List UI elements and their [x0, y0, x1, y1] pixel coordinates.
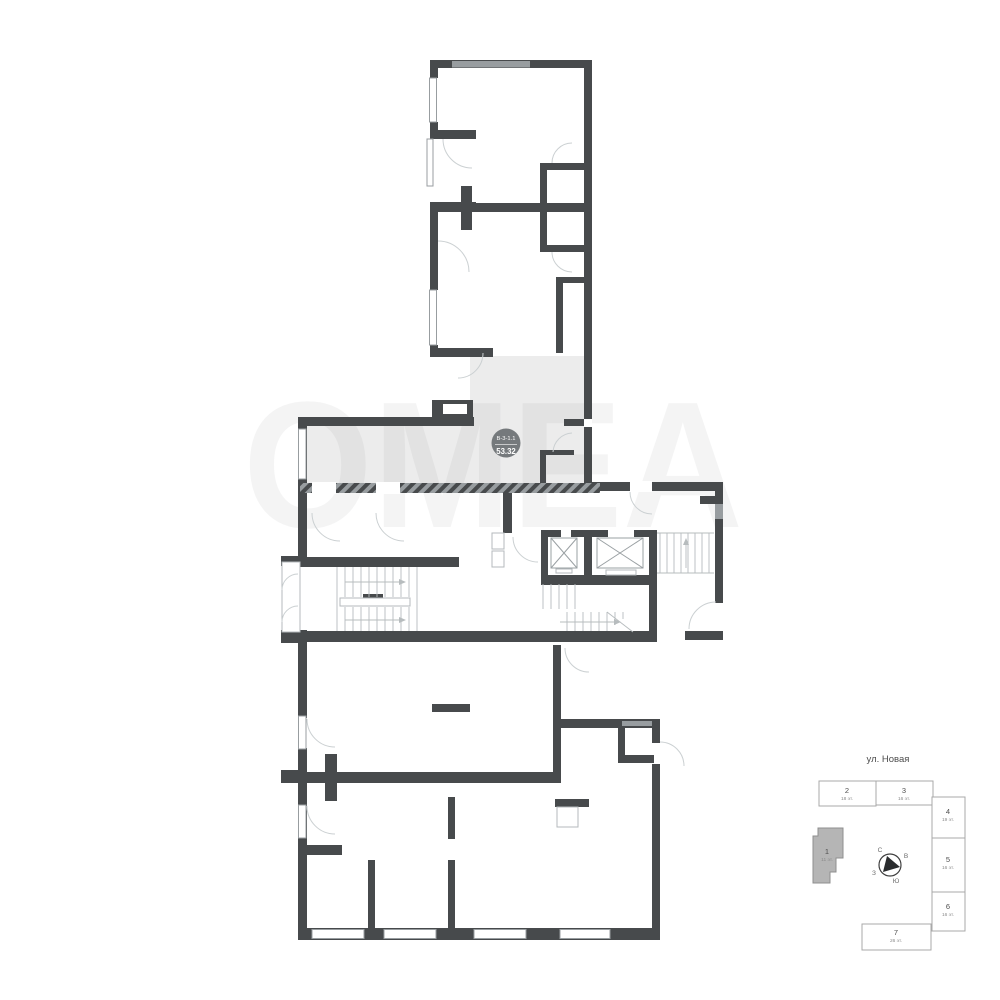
- compass-south-label: Ю: [893, 878, 900, 885]
- building-number: 7: [894, 928, 898, 937]
- unit-area: 53.32: [496, 447, 516, 456]
- building-floors: 19 эт.: [942, 817, 954, 823]
- minimap-building-5[interactable]: 5 16 эт.: [932, 838, 965, 892]
- minimap-building-6[interactable]: 6 16 эт.: [932, 892, 965, 931]
- minimap-building-7[interactable]: 7 26 эт.: [862, 924, 931, 950]
- minimap-building-3[interactable]: 3 16 эт.: [876, 781, 933, 805]
- floorplan-page: ОМЕА: [0, 0, 1000, 1000]
- building-floors: 16 эт.: [942, 865, 954, 871]
- building-floors: 16 эт.: [898, 796, 910, 802]
- building-floors: 18 эт.: [841, 796, 853, 802]
- floor-plan-svg: ОМЕА: [0, 0, 1000, 1000]
- building-floors: 16 эт.: [942, 912, 954, 918]
- minimap-street-label: ул. Новая: [867, 754, 910, 765]
- compass-north-label: С: [878, 847, 883, 854]
- building-number: 3: [902, 786, 906, 795]
- building-number: 1: [825, 847, 829, 856]
- compass-west-label: З: [872, 870, 876, 877]
- minimap: ул. Новая 2 18 эт. 3 16 эт. 4 19 эт. 5 1…: [813, 754, 965, 950]
- building-floors: 11 эт.: [821, 857, 833, 863]
- compass-east-label: В: [904, 853, 908, 860]
- building-number: 6: [946, 902, 950, 911]
- building-number: 4: [946, 807, 950, 816]
- unit-code: В-3-1.1: [496, 436, 515, 442]
- hatched-wall: [300, 483, 600, 493]
- compass: С В З Ю: [872, 847, 908, 885]
- minimap-building-4[interactable]: 4 19 эт.: [932, 797, 965, 838]
- building-number: 2: [845, 786, 849, 795]
- minimap-building-2[interactable]: 2 18 эт.: [819, 781, 876, 806]
- building-number: 5: [946, 855, 950, 864]
- minimap-building-1-highlighted[interactable]: 1 11 эт.: [813, 828, 843, 883]
- unit-badge[interactable]: В-3-1.1 53.32: [492, 429, 521, 458]
- building-floors: 26 эт.: [890, 938, 902, 944]
